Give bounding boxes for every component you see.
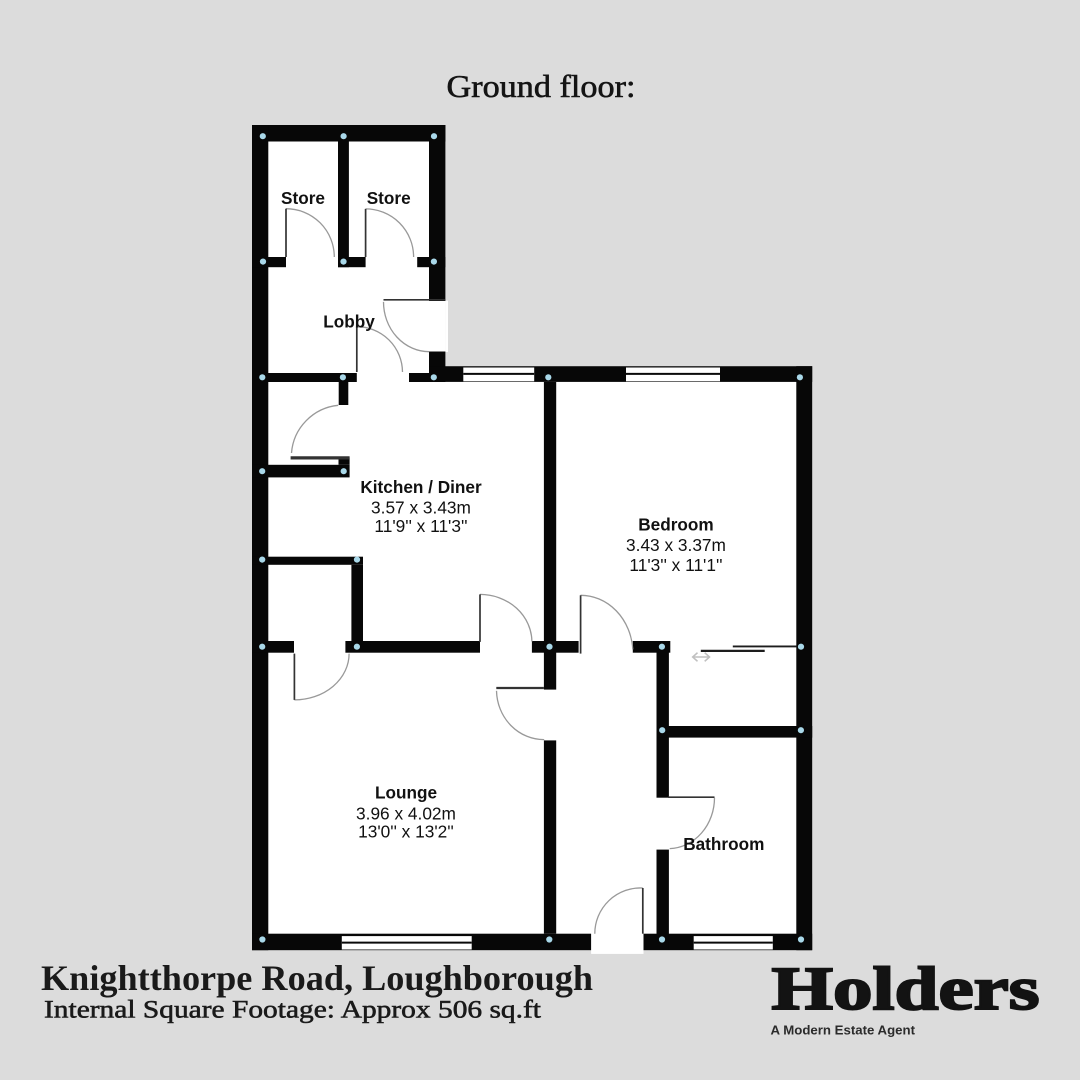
svg-text:Knightthorpe Road, Loughboroug: Knightthorpe Road, Loughborough bbox=[41, 958, 593, 998]
svg-text:Internal Square Footage: Appro: Internal Square Footage: Approx 506 sq.f… bbox=[44, 997, 541, 1024]
svg-text:Holders: Holders bbox=[772, 956, 1040, 1023]
svg-text:Store: Store bbox=[367, 188, 411, 208]
svg-text:Bedroom: Bedroom bbox=[638, 515, 713, 535]
svg-text:11'9'' x 11'3'': 11'9'' x 11'3'' bbox=[374, 516, 467, 536]
svg-text:3.57 x 3.43m: 3.57 x 3.43m bbox=[371, 498, 471, 518]
svg-text:Kitchen / Diner: Kitchen / Diner bbox=[360, 477, 482, 497]
svg-text:3.96 x 4.02m: 3.96 x 4.02m bbox=[356, 804, 456, 824]
svg-text:Lounge: Lounge bbox=[375, 783, 437, 803]
svg-text:Bathroom: Bathroom bbox=[683, 834, 764, 854]
svg-text:Store: Store bbox=[281, 188, 325, 208]
svg-text:3.43 x 3.37m: 3.43 x 3.37m bbox=[626, 535, 726, 555]
svg-text:11'3'' x 11'1'': 11'3'' x 11'1'' bbox=[629, 555, 722, 575]
svg-text:Lobby: Lobby bbox=[323, 312, 375, 332]
svg-text:A Modern Estate Agent: A Modern Estate Agent bbox=[771, 1024, 916, 1038]
svg-text:Ground floor:: Ground floor: bbox=[447, 68, 636, 104]
svg-text:13'0'' x 13'2'': 13'0'' x 13'2'' bbox=[358, 822, 454, 842]
